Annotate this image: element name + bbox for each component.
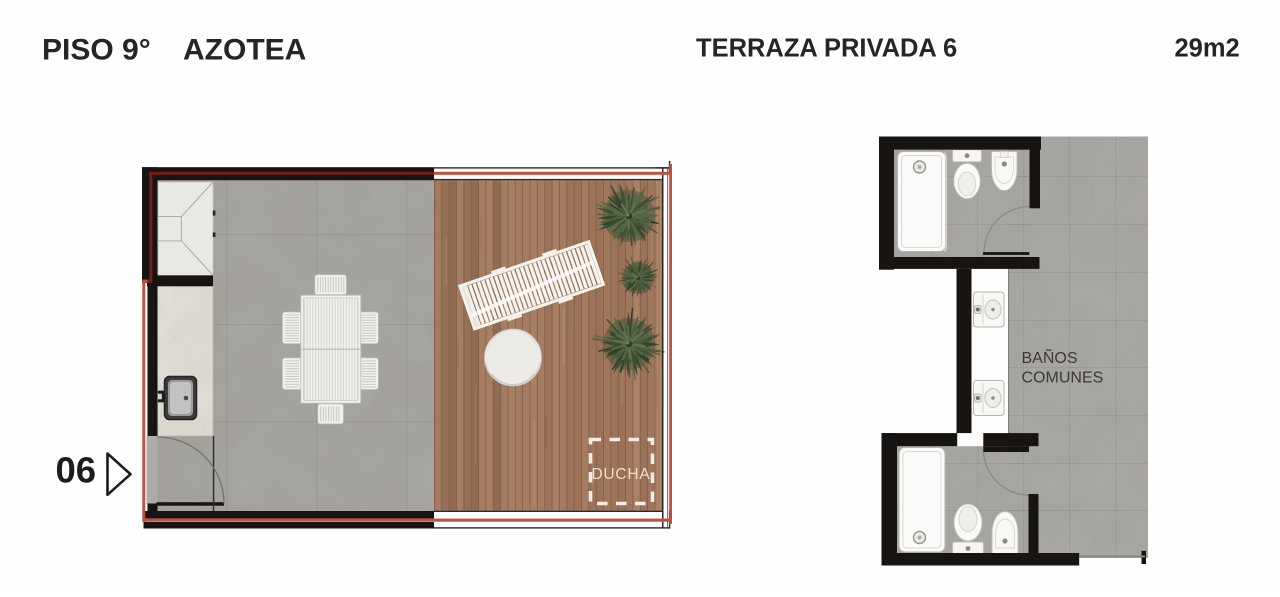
svg-text:29m2: 29m2: [1175, 35, 1240, 63]
svg-text:TERRAZA PRIVADA 6: TERRAZA PRIVADA 6: [696, 35, 957, 63]
svg-text:DUCHA: DUCHA: [591, 466, 650, 483]
svg-text:06: 06: [56, 450, 97, 491]
svg-text:BAÑOS: BAÑOS: [1022, 347, 1078, 367]
svg-text:COMUNES: COMUNES: [1022, 370, 1104, 387]
svg-text:AZOTEA: AZOTEA: [183, 34, 306, 67]
svg-text:PISO 9°: PISO 9°: [42, 34, 151, 67]
